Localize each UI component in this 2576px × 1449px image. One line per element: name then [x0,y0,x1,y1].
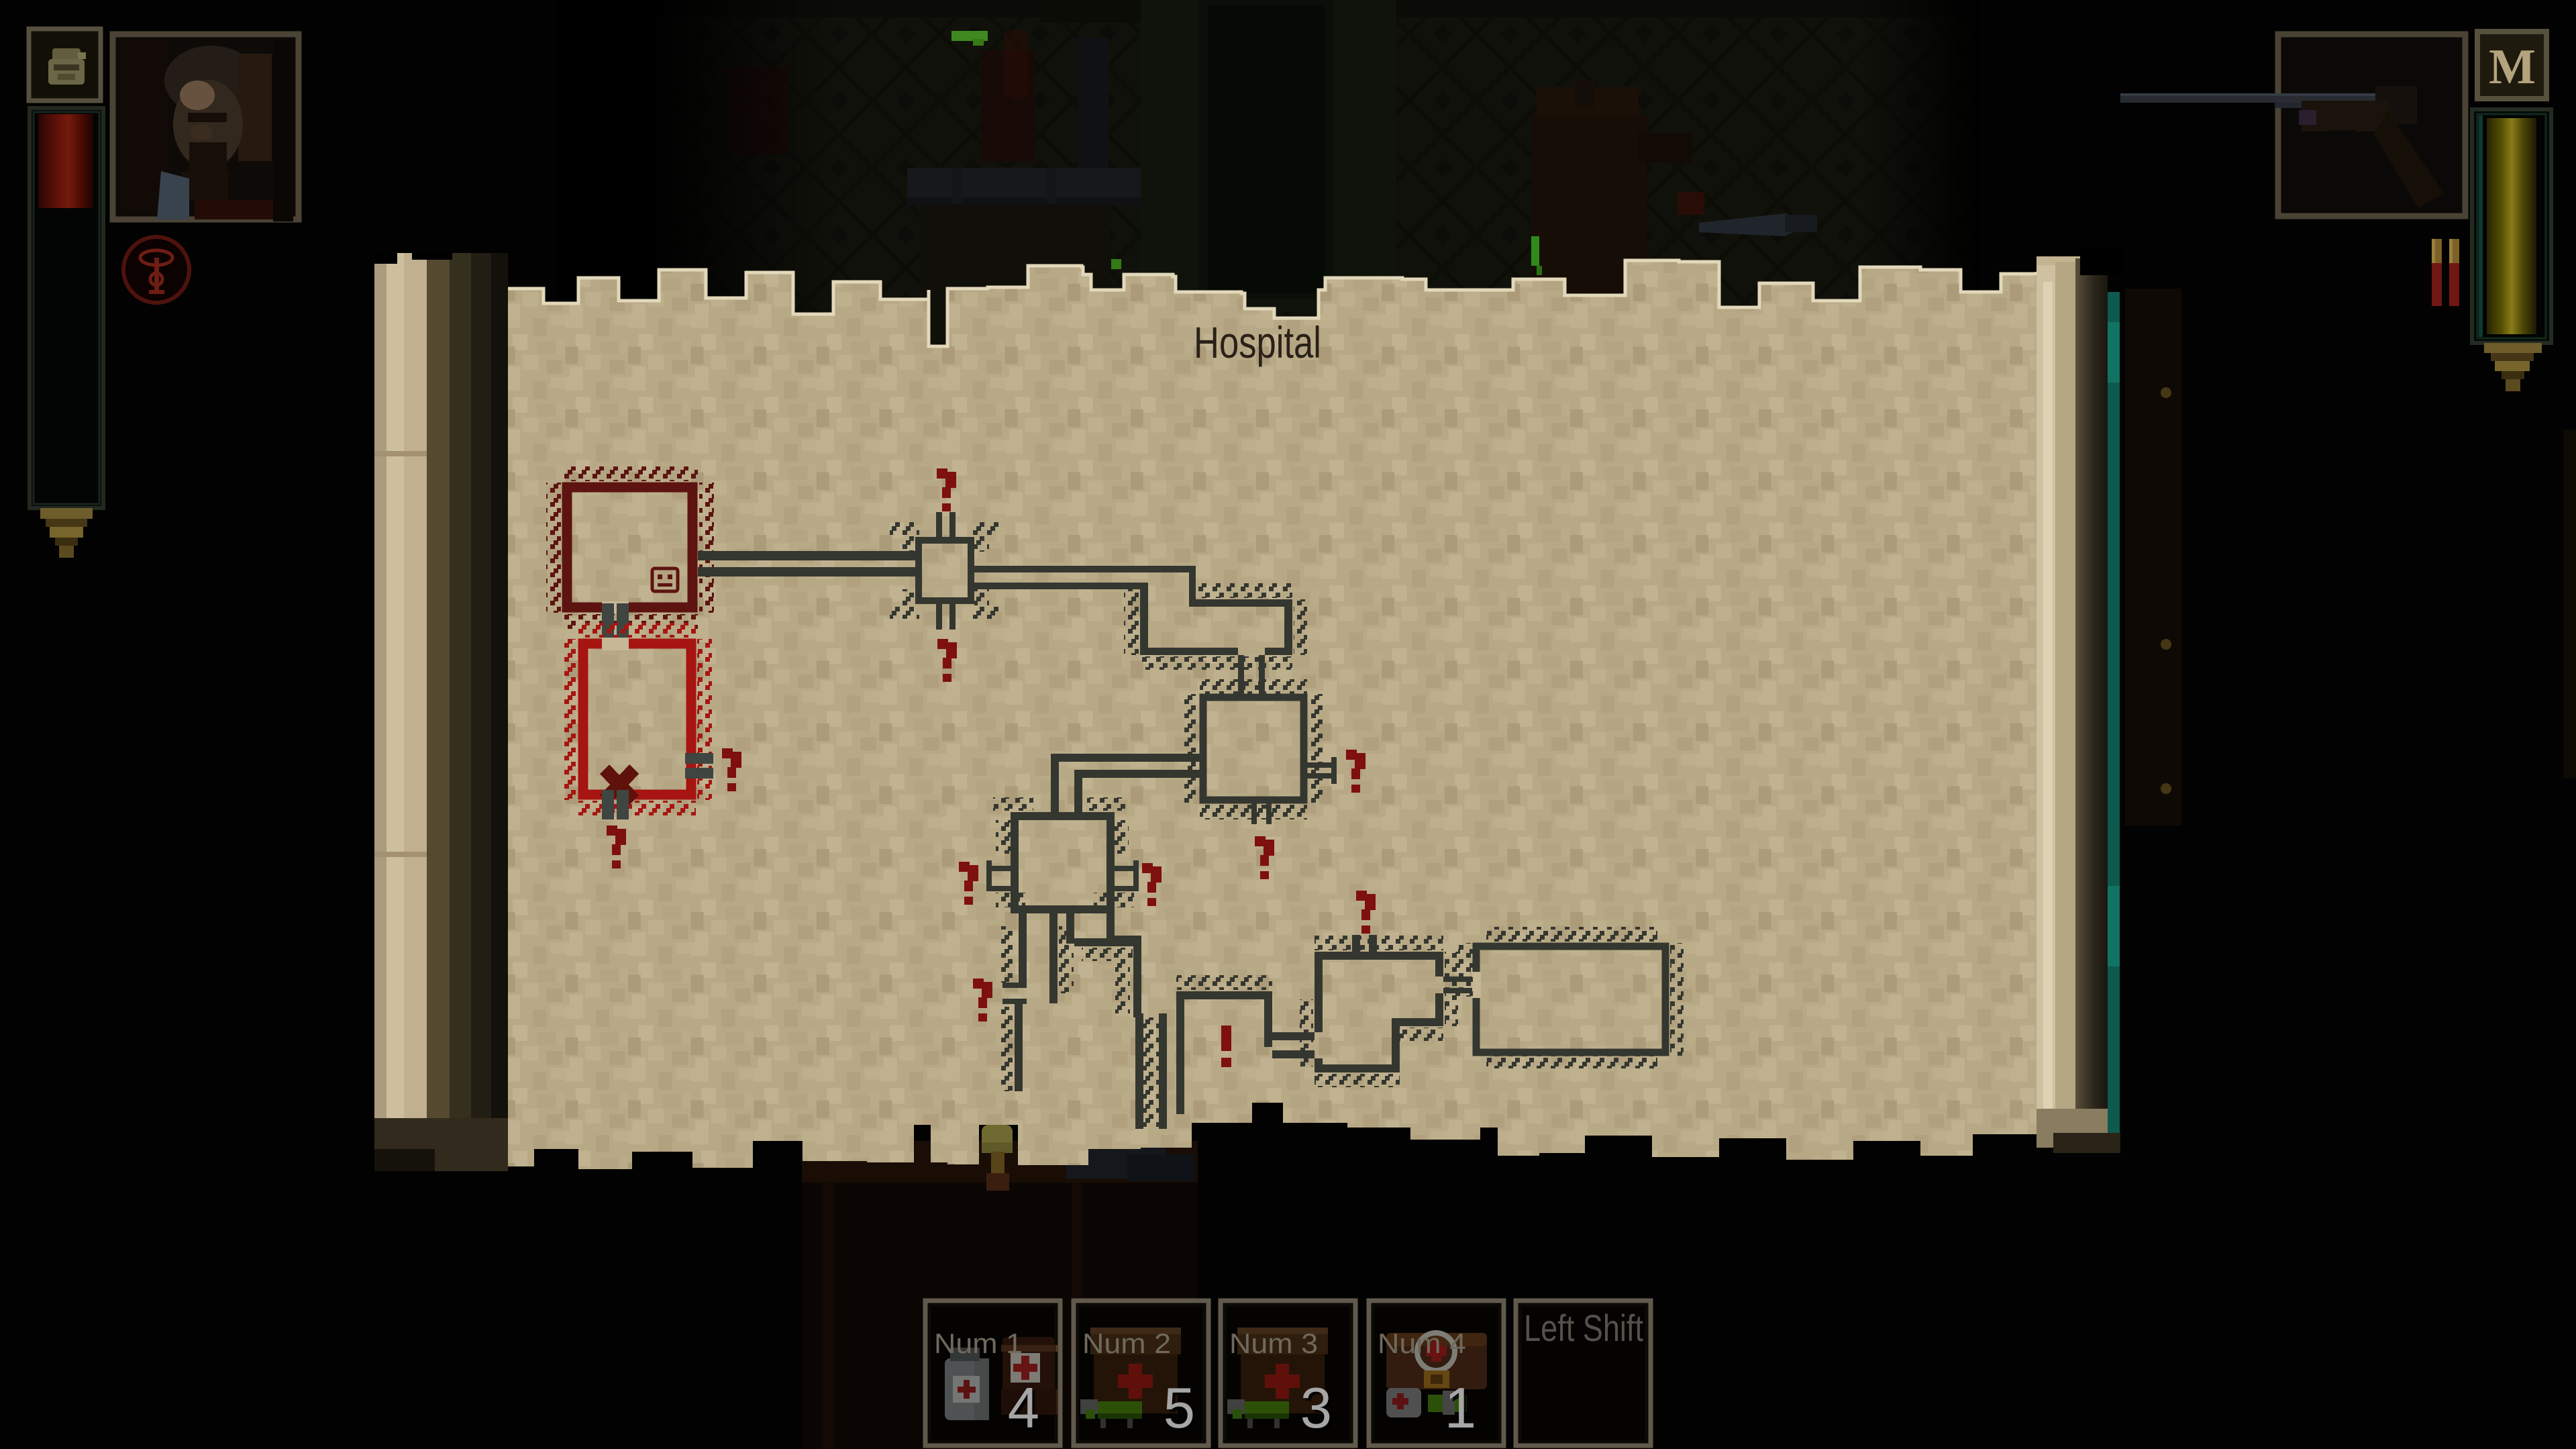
svg-text:Left Shift: Left Shift [1524,1307,1643,1349]
svg-text:1: 1 [1445,1377,1476,1440]
svg-text:Num 2: Num 2 [1082,1328,1171,1359]
svg-text:Num 3: Num 3 [1229,1328,1318,1359]
svg-text:Hospital: Hospital [1194,317,1321,367]
svg-text:4: 4 [1008,1377,1039,1440]
svg-text:3: 3 [1300,1377,1332,1440]
svg-text:M: M [2489,40,2536,95]
svg-text:Num 1: Num 1 [934,1328,1023,1359]
svg-text:Num 4: Num 4 [1378,1328,1466,1359]
svg-text:5: 5 [1164,1377,1195,1440]
